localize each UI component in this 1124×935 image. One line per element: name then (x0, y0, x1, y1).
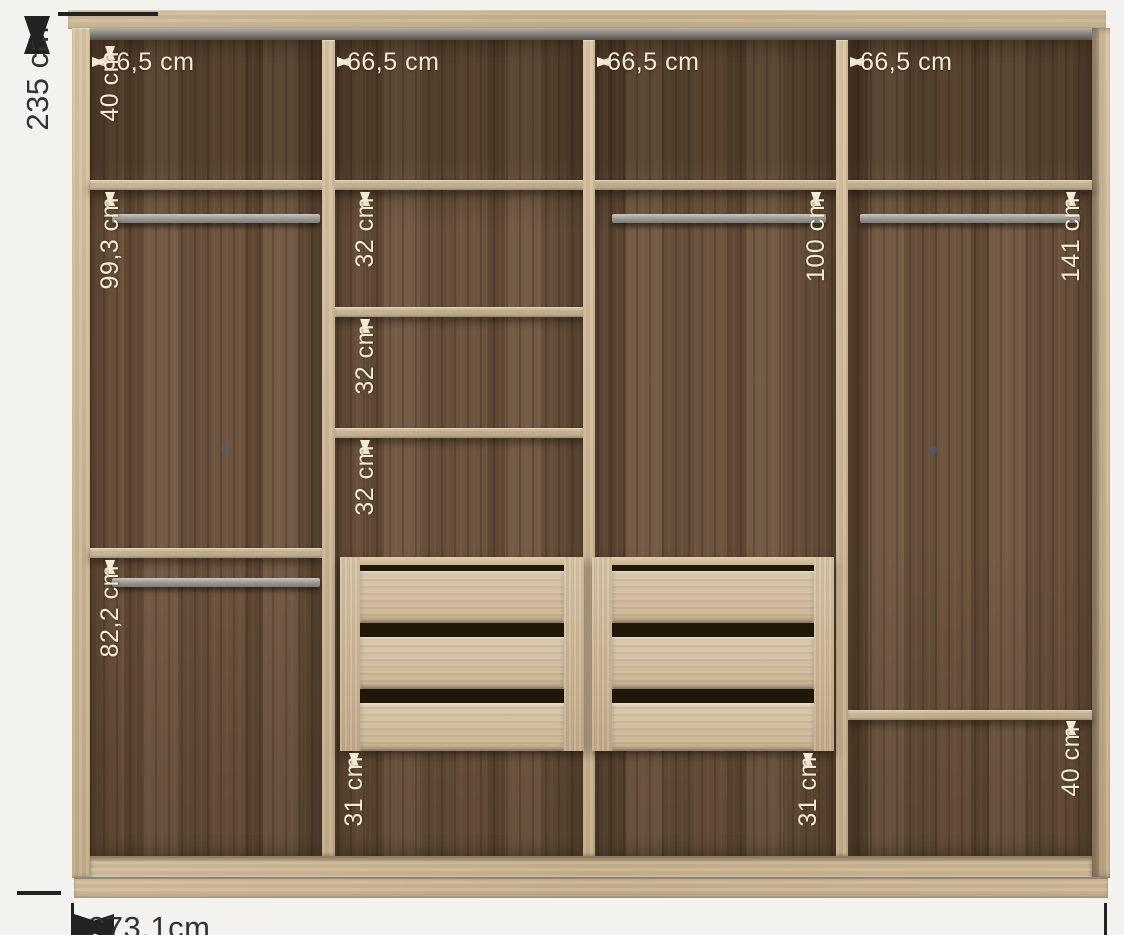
arrow-right-icon (850, 57, 864, 67)
arrow-down-icon (803, 753, 813, 767)
arrow-down-icon (811, 192, 821, 206)
col4-bottom-shelf (848, 710, 1092, 720)
bay-4-shading (848, 40, 1092, 858)
dim-label: 100 cm (804, 192, 829, 287)
arrow-down-icon (1066, 721, 1076, 735)
hanging-rail-col4 (860, 214, 1080, 223)
dim-label: 66,5 cm (850, 50, 962, 75)
dim-label: 99,3 cm (98, 192, 123, 294)
divider-1 (322, 40, 335, 856)
dim-col3-bottom: 31 cm (795, 753, 821, 854)
drawer-unit-top-rail (360, 557, 564, 565)
dim-col1-width: 66,5 cm (92, 48, 330, 76)
dim-col3-hanging: 100 cm (803, 192, 829, 555)
side-panel-left (72, 28, 90, 878)
drawer-front (612, 571, 814, 623)
dim-top-row-height: 40 cm (97, 46, 123, 178)
base-plinth (74, 877, 1108, 898)
drawer-front (612, 637, 814, 689)
divider-3 (836, 40, 848, 856)
side-panel-right (1092, 28, 1110, 878)
col2-shelf-2 (335, 428, 583, 438)
drawer-front (360, 571, 564, 623)
arrow-down-icon (105, 560, 115, 574)
cam-cover-dot-col1 (220, 443, 230, 453)
arrow-down-icon (24, 16, 50, 54)
bottom-floor-panel (90, 856, 1092, 878)
dim-overall-width: 273,1cm (74, 905, 1108, 935)
hanging-rail-col3 (612, 214, 826, 223)
drawer-unit-side (340, 557, 360, 751)
dim-overall-height: 235 cm (24, 16, 50, 896)
dim-label: 66,5 cm (597, 50, 709, 75)
arrow-down-icon (360, 192, 370, 206)
dim-col2-bottom: 31 cm (341, 753, 367, 854)
arrow-down-icon (360, 440, 370, 454)
hanging-rail-col1-lower (112, 578, 320, 587)
dim-col4-bottom: 40 cm (1058, 721, 1084, 854)
dim-label: 66,5 cm (337, 50, 449, 75)
dim-col1-lower: 82,2 cm (97, 560, 123, 854)
arrow-down-icon (1066, 192, 1076, 206)
drawer-unit-right (592, 557, 834, 751)
hanging-rail-col1-upper (112, 214, 320, 223)
arrow-right-icon (74, 914, 114, 935)
drawer-unit-side (592, 557, 612, 751)
dim-col3-width: 66,5 cm (597, 48, 836, 76)
drawer-unit-side (814, 557, 834, 751)
arrow-down-icon (349, 753, 359, 767)
col2-shelf-1 (335, 307, 583, 317)
drawer-unit-top-rail (612, 557, 814, 565)
drawer-front (360, 637, 564, 689)
dim-col1-upper: 99,3 cm (97, 192, 123, 546)
dim-col2-width: 66,5 cm (337, 48, 583, 76)
dim-label: 141 cm (1059, 192, 1084, 287)
col1-middle-shelf (90, 548, 322, 558)
dim-label: 82,2 cm (98, 560, 123, 662)
bay-1-shading (90, 40, 322, 858)
drawer-unit-side (564, 557, 584, 751)
arrow-right-icon (597, 57, 611, 67)
drawer-front (360, 703, 564, 751)
cam-cover-dot-col4 (928, 445, 938, 455)
dim-col2-shelf-1: 32 cm (352, 192, 378, 305)
dim-col4-hanging: 141 cm (1058, 192, 1084, 708)
dim-tick (58, 12, 158, 16)
dim-col2-shelf-2: 32 cm (352, 319, 378, 426)
arrow-right-icon (337, 57, 351, 67)
cornice-top (68, 10, 1106, 29)
arrow-down-icon (105, 192, 115, 206)
arrow-down-icon (105, 46, 115, 60)
wardrobe-diagram: 66,5 cm 66,5 cm 66,5 cm 66,5 cm 40 cm 99… (0, 0, 1124, 935)
arrow-down-icon (360, 319, 370, 333)
drawer-front (612, 703, 814, 751)
drawer-unit-left (340, 557, 584, 751)
dim-col2-shelf-3: 32 cm (352, 440, 378, 555)
dim-col4-width: 66,5 cm (850, 48, 1096, 76)
